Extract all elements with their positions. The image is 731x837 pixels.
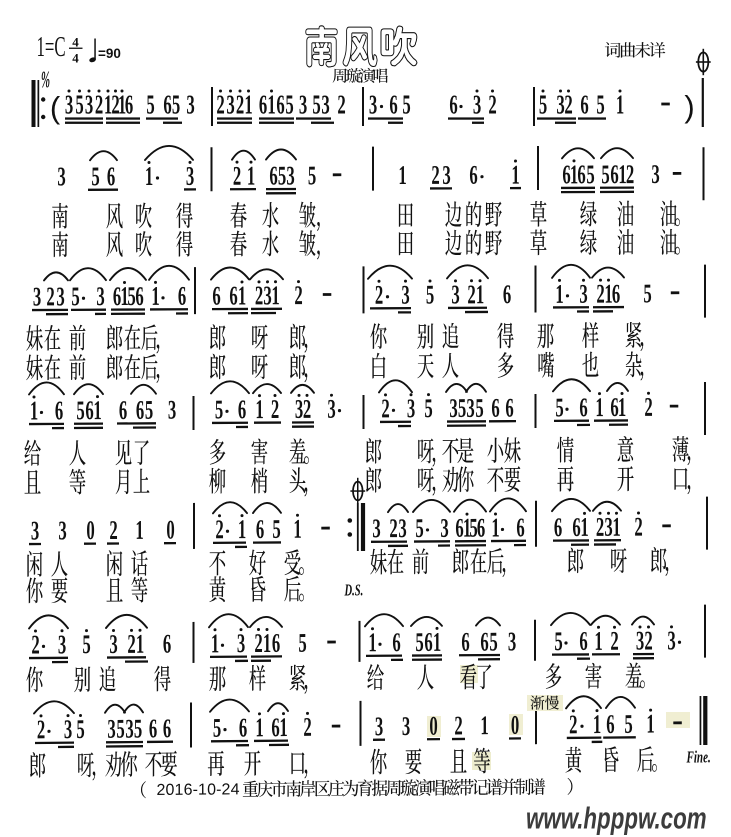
- svg-text:6: 6: [239, 712, 247, 742]
- svg-text:1: 1: [433, 627, 441, 657]
- svg-text:5: 5: [145, 395, 153, 425]
- svg-text:0: 0: [429, 711, 437, 741]
- svg-text:2: 2: [610, 626, 618, 656]
- svg-text:3: 3: [442, 160, 450, 190]
- svg-text:2: 2: [109, 515, 117, 545]
- svg-text:3: 3: [168, 395, 176, 425]
- svg-text:1: 1: [398, 160, 406, 190]
- svg-text:1: 1: [491, 512, 499, 542]
- svg-text:5: 5: [554, 626, 562, 656]
- svg-text:6: 6: [612, 279, 620, 309]
- svg-text:3: 3: [636, 625, 644, 655]
- svg-text:2: 2: [454, 710, 462, 740]
- svg-text:0: 0: [166, 515, 174, 545]
- svg-text:5: 5: [215, 394, 223, 424]
- svg-text:5: 5: [76, 714, 84, 744]
- svg-text:3: 3: [237, 628, 245, 658]
- svg-text:1: 1: [618, 392, 626, 422]
- svg-text:3: 3: [407, 393, 415, 423]
- svg-text:5: 5: [82, 629, 90, 659]
- svg-text:3: 3: [402, 711, 410, 741]
- svg-text:1: 1: [476, 279, 484, 309]
- svg-text:2: 2: [31, 629, 39, 659]
- svg-text:1: 1: [244, 89, 252, 119]
- svg-text:5: 5: [116, 714, 124, 744]
- svg-text:1: 1: [480, 710, 488, 740]
- svg-text:2: 2: [95, 89, 103, 119]
- svg-text:4: 4: [72, 51, 79, 66]
- svg-text:6: 6: [579, 392, 587, 422]
- svg-text:1: 1: [255, 394, 263, 424]
- svg-text:5: 5: [134, 713, 142, 743]
- svg-text:5: 5: [426, 279, 434, 309]
- svg-text:6: 6: [491, 393, 499, 423]
- svg-text:0: 0: [511, 710, 519, 740]
- svg-text:2: 2: [488, 89, 496, 119]
- svg-text:1: 1: [93, 395, 101, 425]
- svg-text:6: 6: [469, 160, 477, 190]
- svg-text:1: 1: [238, 280, 246, 310]
- svg-text:5: 5: [127, 281, 135, 311]
- svg-text:6: 6: [212, 281, 220, 311]
- svg-text:2: 2: [634, 511, 642, 541]
- svg-text:5: 5: [415, 627, 423, 657]
- svg-text:5: 5: [458, 393, 466, 423]
- svg-text:2: 2: [37, 714, 45, 744]
- svg-text:1=C: 1=C: [37, 32, 66, 64]
- svg-text:2: 2: [626, 159, 634, 189]
- svg-text:5: 5: [643, 278, 651, 308]
- svg-text:6: 6: [229, 280, 237, 310]
- svg-text:6: 6: [610, 159, 618, 189]
- svg-text:6: 6: [392, 627, 400, 657]
- svg-text:1: 1: [271, 280, 279, 310]
- svg-text:6: 6: [579, 626, 587, 656]
- svg-text:1: 1: [612, 512, 620, 542]
- svg-text:6: 6: [135, 281, 143, 311]
- svg-text:6: 6: [149, 713, 157, 743]
- svg-text:5: 5: [308, 160, 316, 190]
- svg-text:3: 3: [401, 280, 409, 310]
- svg-text:6: 6: [572, 512, 580, 542]
- svg-text:2: 2: [564, 89, 572, 119]
- svg-text:6: 6: [606, 709, 614, 739]
- svg-text:3: 3: [449, 393, 457, 423]
- svg-text:3: 3: [466, 393, 474, 423]
- svg-text:6: 6: [256, 514, 264, 544]
- svg-text:6: 6: [461, 627, 469, 657]
- svg-text:2: 2: [644, 392, 652, 422]
- svg-text:6: 6: [269, 160, 277, 190]
- svg-text:3: 3: [508, 626, 516, 656]
- svg-text:6: 6: [107, 161, 115, 191]
- svg-text:2: 2: [431, 160, 439, 190]
- svg-text:6: 6: [271, 712, 279, 742]
- svg-text:6: 6: [119, 395, 127, 425]
- svg-text:=90: =90: [98, 46, 121, 61]
- svg-text:2: 2: [381, 393, 389, 423]
- svg-text:): ): [684, 89, 694, 124]
- svg-text:2: 2: [375, 280, 383, 310]
- svg-text:3: 3: [96, 281, 104, 311]
- svg-text:6: 6: [136, 395, 144, 425]
- svg-text:1: 1: [263, 628, 271, 658]
- svg-text:1: 1: [135, 515, 143, 545]
- svg-text:6: 6: [163, 713, 171, 743]
- svg-text:2: 2: [294, 280, 302, 310]
- svg-text:1: 1: [368, 627, 376, 657]
- svg-text:6: 6: [577, 159, 585, 189]
- svg-text:6: 6: [503, 279, 511, 309]
- svg-text:5: 5: [91, 161, 99, 191]
- svg-text:1: 1: [594, 626, 602, 656]
- svg-text:2: 2: [233, 161, 241, 191]
- svg-text:3: 3: [369, 89, 377, 119]
- svg-text:5: 5: [475, 393, 483, 423]
- svg-text:3: 3: [398, 513, 406, 543]
- svg-text:2: 2: [303, 712, 311, 742]
- svg-text:6: 6: [163, 629, 171, 659]
- svg-text:2: 2: [127, 629, 135, 659]
- svg-text:2: 2: [254, 628, 262, 658]
- svg-text:1: 1: [211, 628, 219, 658]
- svg-text:6: 6: [272, 628, 280, 658]
- svg-text:5: 5: [272, 514, 280, 544]
- svg-text:5: 5: [278, 160, 286, 190]
- svg-text:(: (: [50, 90, 61, 125]
- svg-text:3: 3: [33, 281, 41, 311]
- svg-text:1: 1: [511, 160, 519, 190]
- svg-text:5: 5: [146, 89, 154, 119]
- svg-text:6: 6: [389, 89, 397, 119]
- svg-text:www.hpppw.com: www.hpppw.com: [526, 801, 707, 835]
- svg-text:2: 2: [389, 513, 397, 543]
- svg-text:2016-10-24: 2016-10-24: [157, 781, 240, 799]
- svg-text:3: 3: [440, 513, 448, 543]
- svg-text:1: 1: [279, 712, 287, 742]
- svg-text:2: 2: [569, 709, 577, 739]
- svg-text:6: 6: [55, 395, 63, 425]
- svg-text:2: 2: [596, 279, 604, 309]
- svg-text:2: 2: [216, 89, 224, 119]
- svg-text:3: 3: [125, 713, 133, 743]
- svg-text:5: 5: [596, 89, 604, 119]
- svg-text:3: 3: [109, 629, 117, 659]
- svg-text:6: 6: [516, 512, 524, 542]
- svg-text:1: 1: [267, 89, 275, 119]
- svg-text:1: 1: [30, 395, 38, 425]
- svg-text:5: 5: [624, 709, 632, 739]
- svg-text:3: 3: [107, 714, 115, 744]
- svg-text:3: 3: [321, 89, 329, 119]
- svg-text:6: 6: [178, 281, 186, 311]
- svg-text:3: 3: [58, 629, 66, 659]
- svg-text:D.S.: D.S.: [344, 581, 363, 600]
- svg-text:2: 2: [255, 280, 263, 310]
- svg-text:1: 1: [247, 161, 255, 191]
- svg-text:4: 4: [72, 35, 79, 50]
- svg-text:1: 1: [255, 712, 263, 742]
- svg-text:5: 5: [539, 89, 547, 119]
- svg-text:6: 6: [480, 626, 488, 656]
- svg-text:2: 2: [271, 394, 279, 424]
- svg-text:1: 1: [555, 279, 563, 309]
- svg-text:5: 5: [75, 89, 83, 119]
- svg-text:5: 5: [402, 89, 410, 119]
- svg-text:6: 6: [259, 89, 267, 119]
- svg-text:3: 3: [65, 89, 73, 119]
- svg-text:1: 1: [593, 709, 601, 739]
- svg-text:3: 3: [327, 394, 335, 424]
- svg-text:3: 3: [186, 161, 194, 191]
- svg-text:1: 1: [646, 709, 654, 739]
- svg-text:1: 1: [293, 514, 301, 544]
- svg-text:5: 5: [76, 395, 84, 425]
- svg-text:3: 3: [451, 279, 459, 309]
- svg-text:3: 3: [375, 711, 383, 741]
- svg-text:5: 5: [71, 281, 79, 311]
- svg-text:3: 3: [556, 89, 564, 119]
- svg-text:3: 3: [57, 161, 65, 191]
- svg-text:3: 3: [473, 89, 481, 119]
- svg-text:3: 3: [579, 279, 587, 309]
- svg-text:6: 6: [554, 512, 562, 542]
- svg-text:3: 3: [651, 159, 659, 189]
- svg-text:6: 6: [238, 394, 246, 424]
- svg-text:3: 3: [295, 394, 303, 424]
- svg-text:Fine.: Fine.: [686, 748, 711, 767]
- svg-text:1: 1: [238, 514, 246, 544]
- svg-text:2: 2: [467, 279, 475, 309]
- svg-text:5: 5: [172, 89, 180, 119]
- svg-text:5: 5: [555, 392, 563, 422]
- svg-text:3: 3: [263, 280, 271, 310]
- svg-text:5: 5: [285, 89, 293, 119]
- svg-text:3: 3: [286, 160, 294, 190]
- svg-text:3: 3: [31, 515, 39, 545]
- svg-text:3: 3: [56, 281, 64, 311]
- svg-text:3: 3: [64, 714, 72, 744]
- svg-text:1: 1: [145, 161, 153, 191]
- svg-text:3: 3: [604, 512, 612, 542]
- svg-text:6: 6: [163, 89, 171, 119]
- svg-text:2: 2: [596, 512, 604, 542]
- svg-text:1: 1: [595, 392, 603, 422]
- svg-text:3: 3: [372, 513, 380, 543]
- svg-text:1: 1: [616, 89, 624, 119]
- svg-text:0: 0: [86, 515, 94, 545]
- svg-text:5: 5: [213, 713, 221, 743]
- svg-text:6: 6: [125, 89, 133, 119]
- svg-text:5: 5: [298, 628, 306, 658]
- svg-text:2: 2: [236, 89, 244, 119]
- svg-text:3: 3: [85, 89, 93, 119]
- svg-text:6: 6: [505, 393, 513, 423]
- svg-text:2: 2: [303, 394, 311, 424]
- svg-text:6: 6: [449, 89, 457, 119]
- svg-text:5: 5: [601, 159, 609, 189]
- svg-text:5: 5: [312, 89, 320, 119]
- svg-text:6: 6: [477, 513, 485, 543]
- svg-text:5: 5: [489, 626, 497, 656]
- svg-text:5: 5: [424, 393, 432, 423]
- svg-text:3: 3: [667, 625, 675, 655]
- svg-text:2: 2: [215, 514, 223, 544]
- svg-text:1: 1: [151, 281, 159, 311]
- svg-text:6: 6: [85, 395, 93, 425]
- svg-text:6: 6: [424, 627, 432, 657]
- svg-text:3: 3: [226, 89, 234, 119]
- svg-text:2: 2: [644, 625, 652, 655]
- svg-text:2: 2: [337, 89, 345, 119]
- svg-text:6: 6: [580, 89, 588, 119]
- svg-text:5: 5: [586, 159, 594, 189]
- svg-text:3: 3: [186, 89, 194, 119]
- svg-text:3: 3: [58, 515, 66, 545]
- svg-text:%: %: [41, 67, 50, 94]
- svg-text:3: 3: [299, 89, 307, 119]
- svg-text:5: 5: [415, 513, 423, 543]
- svg-text:6: 6: [276, 89, 284, 119]
- svg-text:2: 2: [46, 281, 54, 311]
- svg-text:1: 1: [580, 512, 588, 542]
- svg-text:1: 1: [136, 629, 144, 659]
